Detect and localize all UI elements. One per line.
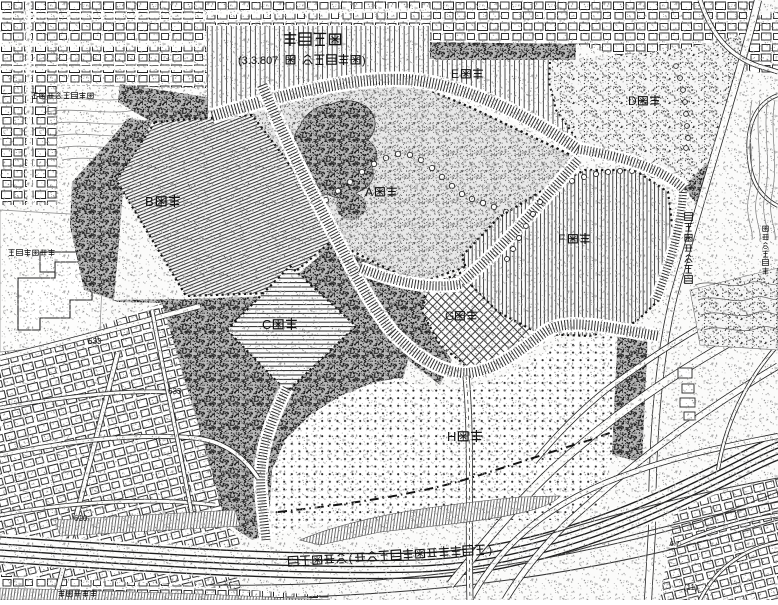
svg-text:(3.3.807: (3.3.807 (238, 55, 278, 67)
svg-text:A: A (365, 185, 373, 199)
svg-text:633: 633 (88, 337, 102, 346)
svg-text:): ) (488, 545, 492, 557)
svg-text:): ) (362, 55, 366, 67)
svg-text:610: 610 (74, 514, 88, 523)
svg-text:H: H (447, 429, 456, 444)
svg-text:633: 633 (168, 387, 182, 396)
svg-text:(11): (11) (684, 583, 698, 592)
svg-text:E: E (451, 67, 459, 81)
svg-text:C: C (262, 317, 271, 332)
svg-text:F: F (558, 232, 565, 246)
svg-text:6.7: 6.7 (670, 541, 680, 548)
svg-text:D: D (628, 94, 637, 108)
svg-text:B: B (145, 194, 154, 209)
svg-text:G: G (445, 309, 454, 323)
